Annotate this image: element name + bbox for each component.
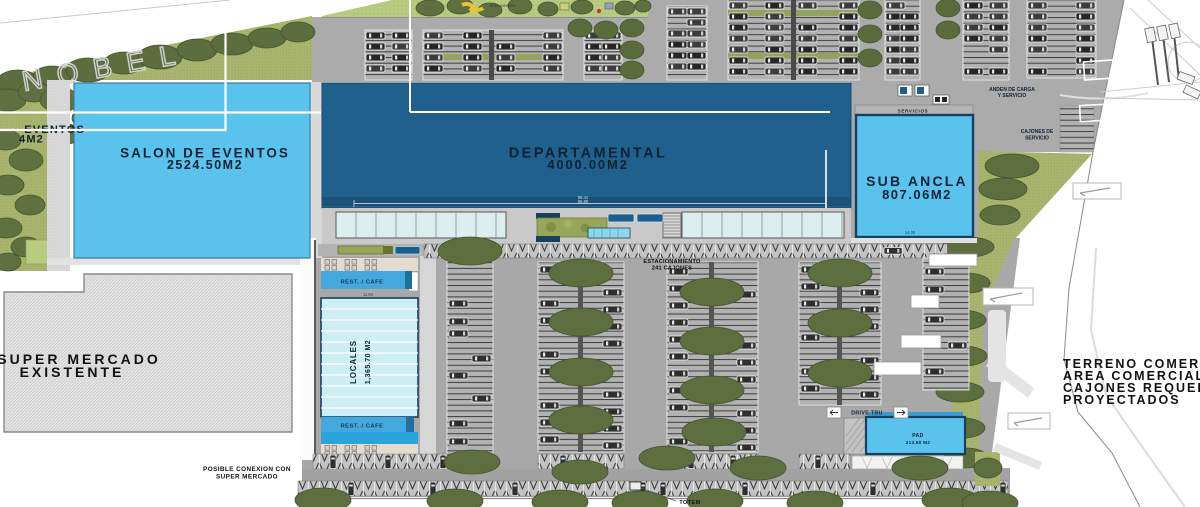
svg-text:SERVICIOS: SERVICIOS bbox=[898, 109, 929, 114]
svg-text:LOCALES: LOCALES bbox=[349, 340, 358, 384]
svg-text:Y SERVICIO: Y SERVICIO bbox=[998, 93, 1027, 99]
svg-text:PROYECTADOS: PROYECTADOS bbox=[1063, 393, 1181, 407]
svg-text:PAD: PAD bbox=[912, 433, 923, 439]
svg-text:ESTACIONAMIENTO: ESTACIONAMIENTO bbox=[643, 259, 701, 265]
svg-text:4000.00M2: 4000.00M2 bbox=[547, 157, 628, 172]
svg-text:SERVICIO: SERVICIO bbox=[1025, 136, 1049, 142]
svg-text:11.94: 11.94 bbox=[363, 292, 374, 297]
svg-text:4M2: 4M2 bbox=[19, 134, 44, 146]
svg-text:85.80: 85.80 bbox=[578, 199, 589, 204]
svg-text:AREA INFANTIL: AREA INFANTIL bbox=[490, 4, 516, 8]
svg-text:DRIVE TRU: DRIVE TRU bbox=[851, 411, 883, 417]
svg-text:2524.50M2: 2524.50M2 bbox=[167, 158, 243, 172]
svg-text:241 CAJONES: 241 CAJONES bbox=[652, 266, 692, 272]
svg-text:CAJONES DE: CAJONES DE bbox=[1021, 129, 1054, 135]
svg-text:1,365.70 M2: 1,365.70 M2 bbox=[365, 340, 372, 384]
svg-text:POSIBLE CONEXION CON: POSIBLE CONEXION CON bbox=[203, 466, 291, 473]
svg-text:807.06M2: 807.06M2 bbox=[882, 187, 952, 202]
svg-text:REST. / CAFE: REST. / CAFE bbox=[340, 424, 383, 430]
svg-text:REST. / CAFE: REST. / CAFE bbox=[340, 280, 383, 286]
svg-text:EXISTENTE: EXISTENTE bbox=[20, 364, 125, 380]
svg-text:SUPER MERCADO: SUPER MERCADO bbox=[216, 474, 278, 481]
svg-text:TOTEM: TOTEM bbox=[679, 500, 700, 506]
svg-text:14.00: 14.00 bbox=[905, 230, 916, 235]
svg-text:213.60 M2: 213.60 M2 bbox=[906, 440, 931, 445]
